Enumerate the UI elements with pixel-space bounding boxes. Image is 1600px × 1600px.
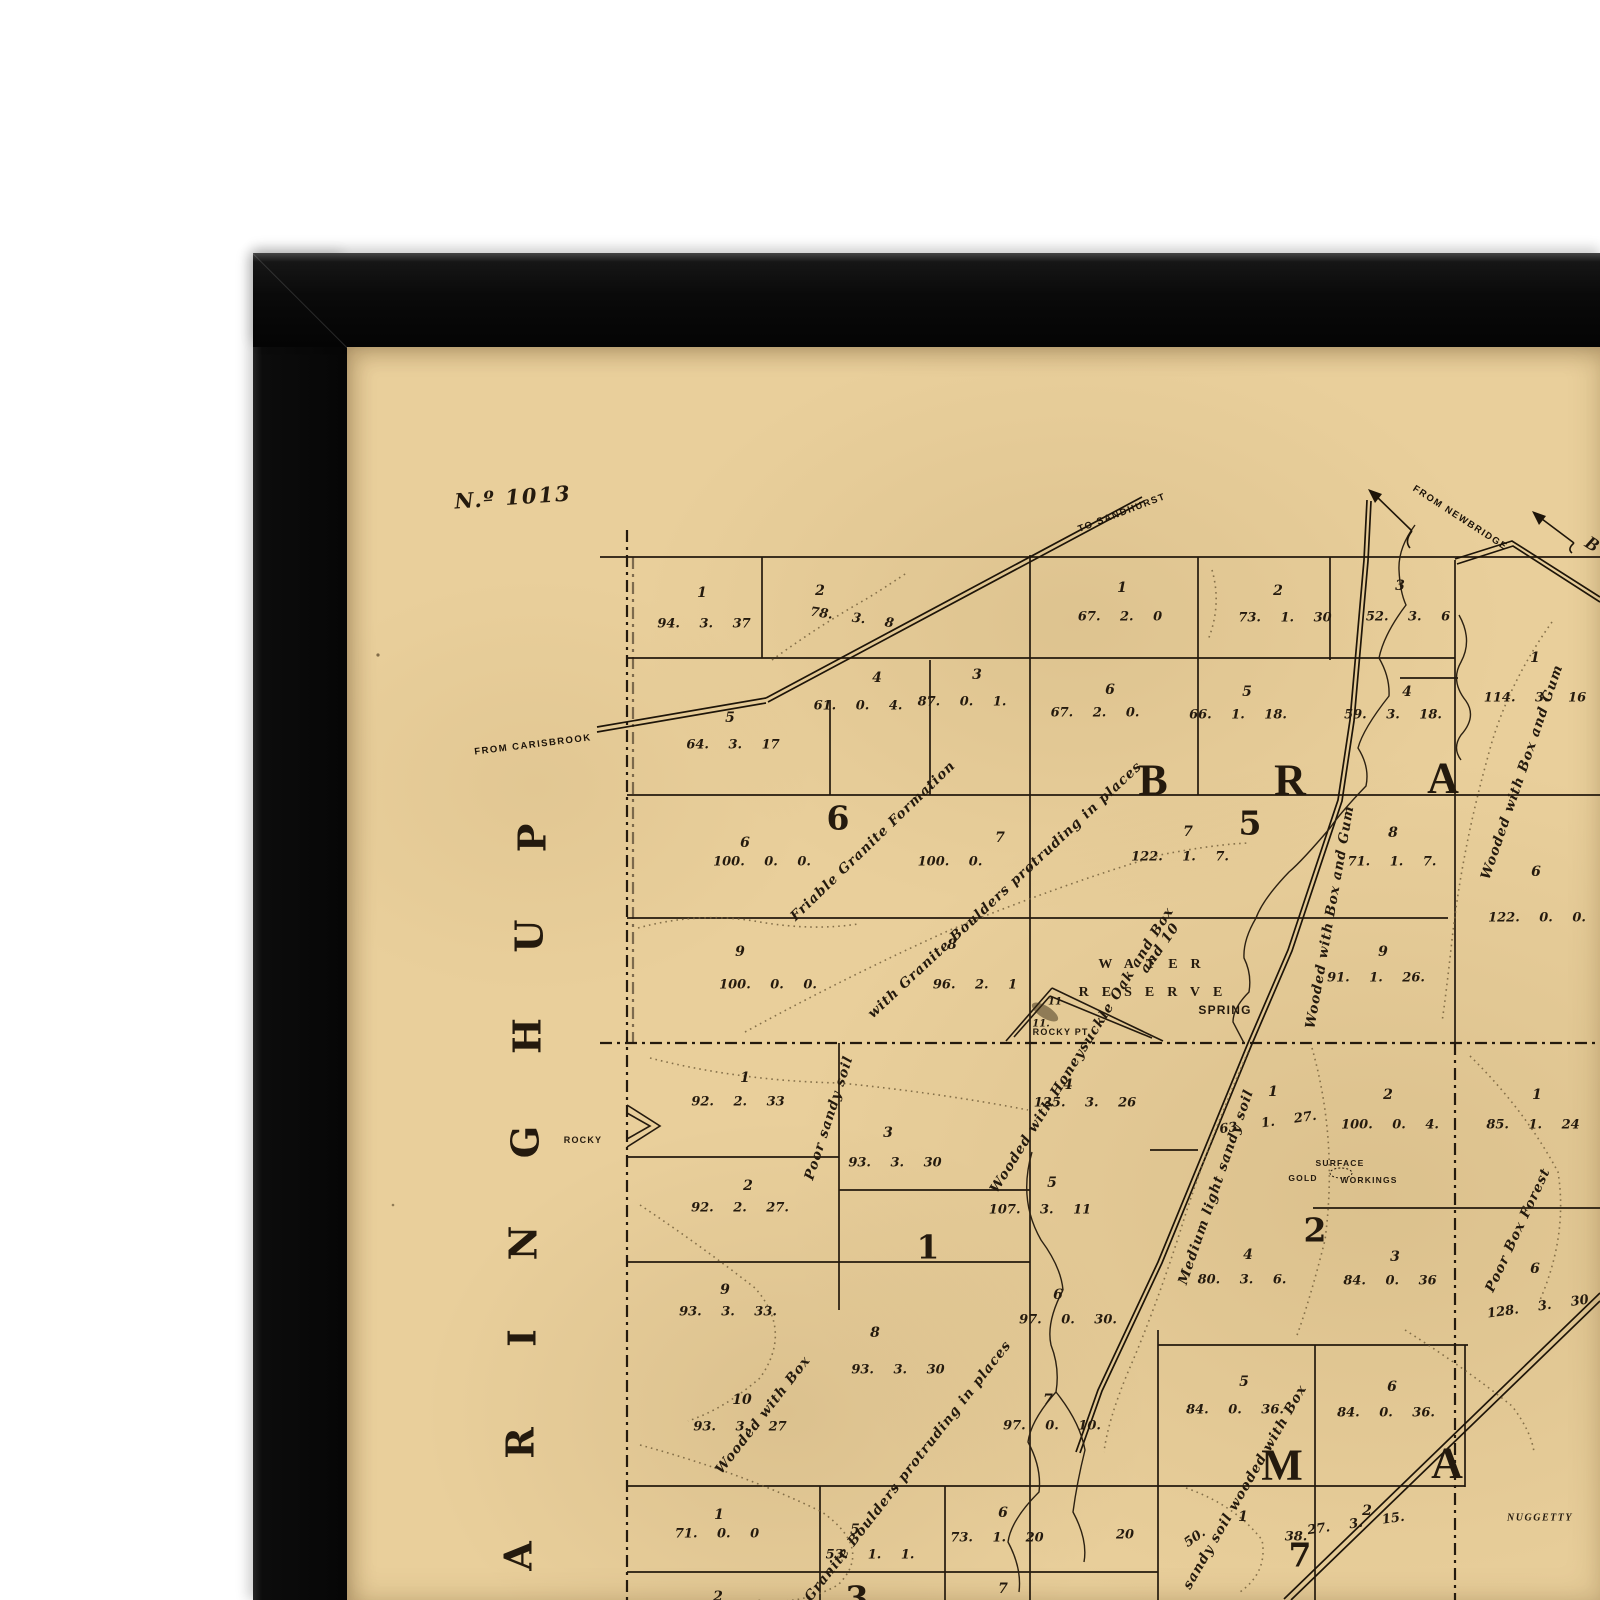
- area-value: 59. 3. 18.: [1344, 708, 1442, 723]
- area-value: 66. 1. 18.: [1189, 708, 1287, 723]
- small-number: 11: [1048, 997, 1062, 1008]
- area-value: 38.: [1285, 1530, 1308, 1545]
- area-value: 92. 2. 27.: [691, 1201, 789, 1216]
- margin-letter: H: [505, 1018, 550, 1054]
- lot-number: 4: [1402, 684, 1412, 700]
- picture-frame-left: [253, 253, 347, 1600]
- lot-number: 1: [740, 1070, 750, 1086]
- place-label: RESERVE: [1079, 985, 1236, 1001]
- place-label: SURFACE: [1315, 1158, 1364, 1168]
- area-value: 84. 0. 36: [1343, 1274, 1436, 1289]
- place-label: NUGGETTY: [1507, 1513, 1573, 1524]
- margin-letter: R: [498, 1427, 543, 1459]
- lot-number: 6: [1105, 682, 1115, 698]
- picture-frame-top: [253, 253, 1600, 347]
- parish-letter: B: [1138, 755, 1167, 806]
- lot-number: 6: [1531, 864, 1541, 880]
- area-value: 73. 1. 30: [1238, 611, 1331, 626]
- area-value: 93. 3. 30: [851, 1363, 944, 1378]
- area-value: 91. 1. 26.: [1327, 971, 1425, 986]
- lot-number: 6: [1530, 1261, 1540, 1277]
- area-value: 71. 1. 7.: [1348, 855, 1437, 870]
- sheet-number: N.º 1013: [454, 480, 573, 513]
- area-value: 85. 1. 24: [1486, 1118, 1579, 1133]
- lot-number: 1: [1268, 1084, 1278, 1100]
- lot-number: 8: [1388, 825, 1398, 841]
- lot-number: 9: [1378, 944, 1388, 960]
- area-value: 107. 3. 11: [989, 1203, 1091, 1218]
- area-value: 93. 3. 33.: [679, 1305, 777, 1320]
- area-value: 87. 0. 1.: [918, 695, 1007, 710]
- lot-number: 5: [1242, 684, 1252, 700]
- section-number: 3: [846, 1579, 869, 1600]
- lot-number: 1: [1530, 650, 1540, 666]
- lot-number: 4: [1243, 1247, 1253, 1263]
- area-value: 97. 0. 30.: [1019, 1313, 1117, 1328]
- lot-number: 1: [1532, 1087, 1542, 1103]
- parish-letter: A: [1427, 753, 1459, 804]
- road-label: FROM CARISBROOK: [474, 732, 592, 757]
- section-number: 5: [1239, 804, 1262, 843]
- small-number: 11.: [1032, 1019, 1049, 1030]
- lot-number: 2: [743, 1178, 753, 1194]
- lot-number: 3: [1395, 578, 1405, 594]
- map-labels: N.º 1013 FROM CARISBROOKTO SANDHURSTFROM…: [0, 0, 1600, 1600]
- lot-number: 2: [1273, 583, 1283, 599]
- lot-number: 7: [998, 1581, 1008, 1597]
- framed-map-photo: N.º 1013 FROM CARISBROOKTO SANDHURSTFROM…: [0, 0, 1600, 1600]
- lot-number: 5: [1047, 1175, 1057, 1191]
- lot-number: 7: [1043, 1392, 1053, 1408]
- lot-number: 3: [1390, 1249, 1400, 1265]
- lot-number: 3: [972, 667, 982, 683]
- area-value: 80. 3. 6.: [1198, 1273, 1287, 1288]
- area-value: 84. 0. 36.: [1337, 1406, 1435, 1421]
- terrain-annotation: Friable Granite Formation: [787, 758, 959, 925]
- road-label: TO SANDHURST: [1076, 491, 1167, 535]
- area-value: 97. 0. 10.: [1003, 1419, 1101, 1434]
- lot-number: 2: [713, 1589, 723, 1600]
- area-value: 100. 0. 0.: [713, 855, 811, 870]
- section-number: 6: [827, 799, 850, 838]
- lot-number: 9: [735, 944, 745, 960]
- section-number: 2: [1304, 1211, 1327, 1250]
- lot-number: 3: [883, 1125, 893, 1141]
- lot-number: 5: [1239, 1374, 1249, 1390]
- area-value: 20: [1116, 1528, 1134, 1543]
- lot-number: 6: [740, 835, 750, 851]
- place-label: GOLD: [1288, 1173, 1317, 1183]
- area-value: 100. 0. 4.: [1341, 1118, 1439, 1133]
- lot-number: 10: [732, 1392, 751, 1408]
- lot-number: 1: [697, 585, 707, 601]
- place-label: WORKINGS: [1340, 1175, 1397, 1185]
- lot-number: 5: [725, 710, 735, 726]
- place-label: ROCKY: [564, 1135, 603, 1145]
- lot-number: 6: [998, 1505, 1008, 1521]
- section-number: 1: [917, 1228, 940, 1267]
- parish-letter: R: [1274, 755, 1306, 806]
- terrain-annotation: Wooded with Box and Gum: [1302, 804, 1357, 1030]
- area-value: 84. 0. 36.: [1186, 1403, 1284, 1418]
- area-value: 92. 2. 33: [691, 1095, 784, 1110]
- lot-number: 7: [995, 830, 1005, 846]
- area-value: 78. 3. 8: [809, 605, 895, 632]
- lot-number: 8: [870, 1325, 880, 1341]
- place-label: SPRING: [1198, 1003, 1251, 1017]
- area-value: 64. 3. 17: [686, 738, 779, 753]
- area-value: 128. 3. 30: [1486, 1292, 1589, 1321]
- area-value: 93. 3. 30: [848, 1156, 941, 1171]
- area-value: 100. 0. 0.: [719, 978, 817, 993]
- margin-letter: G: [503, 1126, 548, 1158]
- margin-letter: I: [500, 1329, 545, 1347]
- area-value: 73. 1. 20: [950, 1531, 1043, 1546]
- area-value: 67. 2. 0: [1078, 610, 1162, 625]
- parish-letter: A: [1431, 1438, 1463, 1489]
- area-value: 96. 2. 1: [933, 978, 1017, 993]
- margin-letter: A: [496, 1541, 541, 1570]
- area-value: 61. 0. 4.: [814, 699, 903, 714]
- area-value: 67. 2. 0.: [1051, 706, 1140, 721]
- terrain-annotation: Poor Box Forest: [1482, 1165, 1554, 1294]
- lot-number: 4: [872, 670, 882, 686]
- area-value: 52. 3. 6: [1366, 610, 1450, 625]
- lot-number: 7: [1183, 824, 1193, 840]
- margin-letter: N: [501, 1226, 546, 1261]
- lot-number: 6: [1387, 1379, 1397, 1395]
- lot-number: 2: [1383, 1087, 1393, 1103]
- area-value: 122. 1. 7.: [1131, 850, 1229, 865]
- lot-number: 1: [714, 1507, 724, 1523]
- lot-number: 9: [720, 1282, 730, 1298]
- road-label: B: [1580, 532, 1600, 558]
- terrain-annotation: Wooded with Box: [712, 1353, 814, 1477]
- area-value: 71. 0. 0: [675, 1527, 759, 1542]
- area-value: 122. 0. 0.: [1488, 911, 1586, 926]
- area-value: 94. 3. 37: [657, 617, 750, 632]
- road-label: FROM NEWBRIDGE: [1411, 483, 1510, 553]
- lot-number: 6: [1053, 1287, 1063, 1303]
- margin-letter: U: [507, 919, 552, 952]
- area-value: 27. 3. 15.: [1307, 1510, 1406, 1538]
- lot-number: 2: [815, 583, 825, 599]
- area-value: 114. 3. 16: [1484, 691, 1586, 706]
- lot-number: 1: [1117, 580, 1127, 596]
- margin-letter: P: [510, 824, 555, 853]
- area-value: 100. 0.: [918, 855, 983, 870]
